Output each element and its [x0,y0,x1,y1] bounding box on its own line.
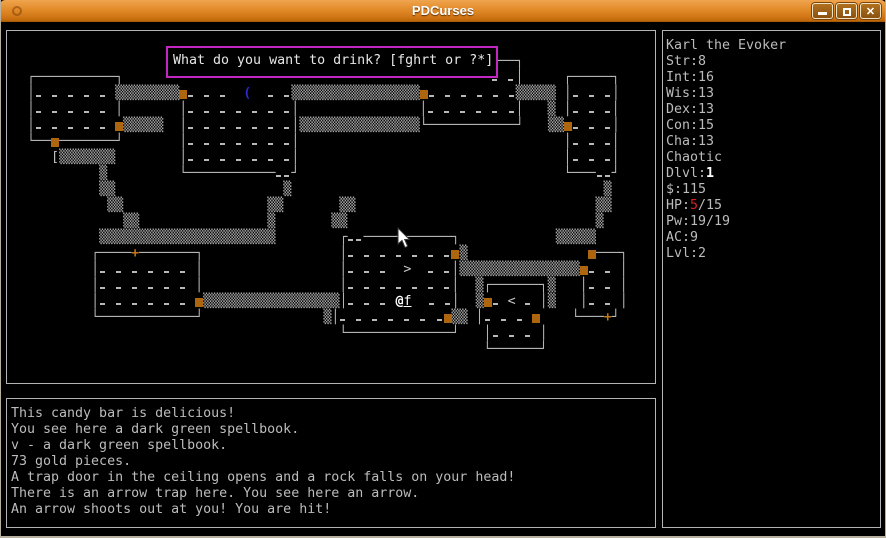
message-line: You see here a dark green spellbook. [11,422,515,438]
close-icon: ✕ [861,5,880,18]
maximize-icon [843,8,851,16]
message-line: v - a dark green spellbook. [11,438,515,454]
gold-line: $:115 [666,182,786,198]
character-name: Karl the Evoker [666,38,786,54]
close-button[interactable]: ✕ [860,3,881,19]
message-line: There is an arrow trap here. You see her… [11,486,515,502]
message-line: A trap door in the ceiling opens and a r… [11,470,515,486]
attribute-line: Wis:13 [666,86,786,102]
attribute-lines: Str:8Int:16Wis:13Dex:13Con:15Cha:13Chaot… [666,54,786,166]
drink-prompt-window: What do you want to drink? [fghrt or ?*] [166,46,498,78]
dlvl-label: Dlvl: [666,166,706,181]
power-line: Pw:19/19 [666,214,786,230]
window-title: PDCurses [0,3,886,18]
dungeon-level-line: Dlvl:1 [666,166,786,182]
minimize-icon [818,12,827,15]
hp-max-value: /15 [698,198,722,213]
dlvl-value: 1 [706,166,714,181]
hp-current-value: 5 [690,198,698,213]
minimize-button[interactable] [812,3,833,19]
attribute-line: Cha:13 [666,134,786,150]
maximize-button[interactable] [836,3,857,19]
hp-line: HP:5/15 [666,198,786,214]
message-line: An arrow shoots out at you! You are hit! [11,502,515,518]
terminal-client-area: ┌───────────┐ ┌──────────┐ │ ┌─────┐ │ ▒… [1,22,885,536]
status-panel: Karl the Evoker Str:8Int:16Wis:13Dex:13C… [666,38,786,262]
message-line: This candy bar is delicious! [11,406,515,422]
attribute-line: Con:15 [666,118,786,134]
title-bar[interactable]: PDCurses ✕ [0,0,886,22]
attribute-line: Dex:13 [666,102,786,118]
explevel-line: Lvl:2 [666,246,786,262]
message-line: 73 gold pieces. [11,454,515,470]
window-controls: ✕ [812,3,881,19]
ac-line: AC:9 [666,230,786,246]
mouse-cursor-icon [397,227,411,249]
message-log: This candy bar is delicious!You see here… [11,406,515,518]
attribute-line: Str:8 [666,54,786,70]
attribute-line: Chaotic [666,150,786,166]
hp-label: HP: [666,198,690,213]
pdcurses-window: PDCurses ✕ ┌───────────┐ ┌──────────┐ [0,0,886,538]
attribute-line: Int:16 [666,70,786,86]
drink-prompt-text: What do you want to drink? [fghrt or ?*] [173,53,496,68]
